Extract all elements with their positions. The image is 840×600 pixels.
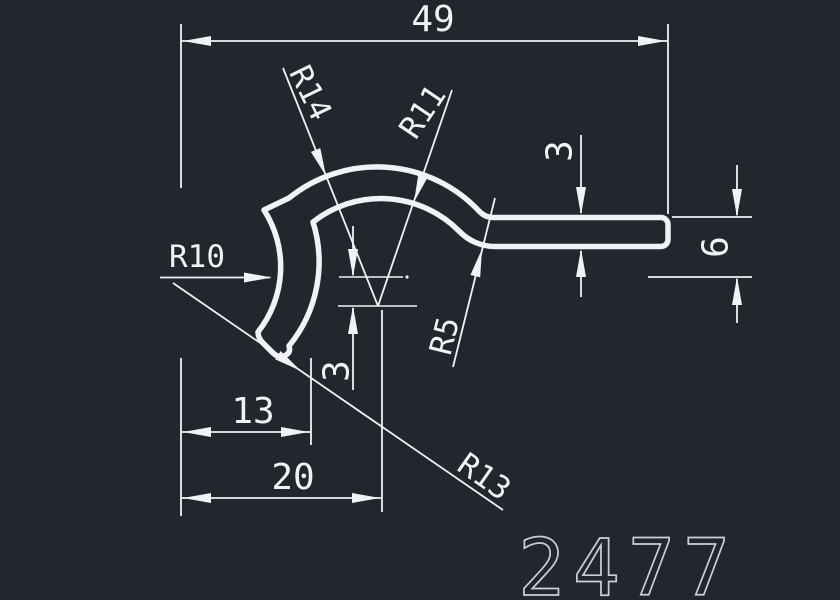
dim-13-arrow-right [281,427,309,437]
dim-3c-arrow-up [348,306,358,334]
leader-r10-arrow [244,273,272,283]
dim-13-label: 13 [231,391,274,432]
dim-20-arrow-right [352,493,380,503]
leader-r14-arrow [311,148,326,176]
leader-r13-label: R13 [451,446,518,508]
dim-3c-tick-dot [405,275,408,278]
dim-13-arrow-left [183,427,211,437]
dim-49-arrow-right [638,36,666,46]
leader-r10-label: R10 [169,239,225,275]
cad-drawing-canvas: 49 3 6 3 13 [0,0,840,600]
leader-r5-arrow [470,249,482,277]
leader-r14-label: R14 [282,60,339,126]
cad-drawing: 49 3 6 3 13 [0,0,840,600]
dim-3bar-arrow-up [576,249,586,277]
dim-20-arrow-left [183,493,211,503]
dim-3bar-label: 3 [540,140,581,162]
radius-leaders: R14 R11 R10 R5 R13 [160,60,517,510]
dim-center-offset: 3 [317,226,418,390]
dim-6-arrow-up [732,277,742,305]
dim-49-label: 49 [411,0,454,40]
dim-6-label: 6 [696,236,737,258]
dim-20-label: 20 [271,457,314,498]
leader-r11-arrow [414,174,428,202]
dim-center-width: 20 [181,310,382,512]
dim-6-arrow-down [732,189,742,217]
leader-r5-label: R5 [423,314,467,359]
dim-3bar-arrow-down [576,187,586,215]
dim-3c-label: 3 [317,360,358,382]
dim-49-arrow-left [183,36,211,46]
leader-r11-label: R11 [392,79,453,146]
part-number: 2477 [518,524,738,600]
